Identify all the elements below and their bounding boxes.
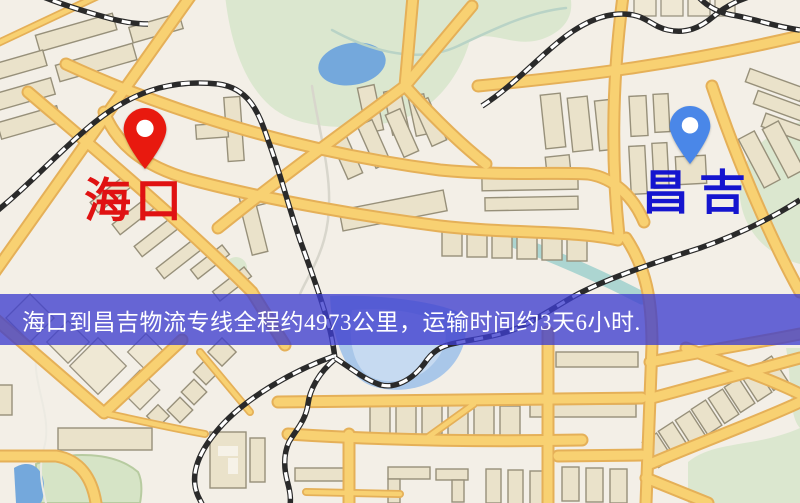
map-pin-icon xyxy=(122,107,168,170)
origin-label: 海口 xyxy=(84,177,186,224)
map-view[interactable]: 海口 昌吉 海口到昌吉物流专线全程约4973公里，运输时间约3天6小时. xyxy=(0,0,800,503)
map-pin-icon xyxy=(668,105,712,165)
route-info-banner: 海口到昌吉物流专线全程约4973公里，运输时间约3天6小时. xyxy=(0,294,800,345)
destination-pin[interactable] xyxy=(668,105,712,165)
map-canvas xyxy=(0,0,800,503)
origin-pin[interactable] xyxy=(122,107,168,170)
route-info-text: 海口到昌吉物流专线全程约4973公里，运输时间约3天6小时. xyxy=(22,303,641,337)
destination-label: 昌吉 xyxy=(642,169,756,216)
